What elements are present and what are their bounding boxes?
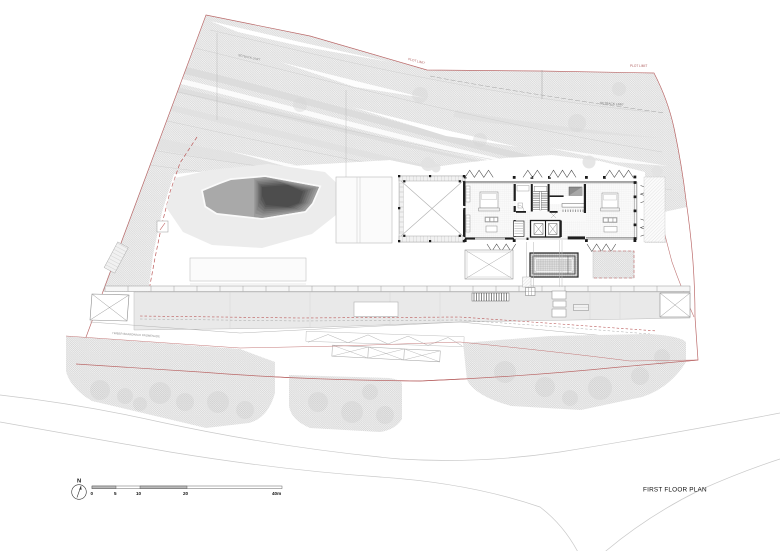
svg-text:5: 5 bbox=[114, 491, 117, 496]
svg-text:PLOT LIMIT: PLOT LIMIT bbox=[630, 64, 647, 68]
svg-text:N: N bbox=[77, 479, 81, 485]
svg-text:0: 0 bbox=[91, 491, 94, 496]
svg-text:FIRST FLOOR PLAN: FIRST FLOOR PLAN bbox=[643, 487, 707, 494]
svg-text:10: 10 bbox=[136, 491, 142, 496]
svg-text:20: 20 bbox=[183, 491, 189, 496]
svg-text:40m: 40m bbox=[272, 491, 281, 496]
